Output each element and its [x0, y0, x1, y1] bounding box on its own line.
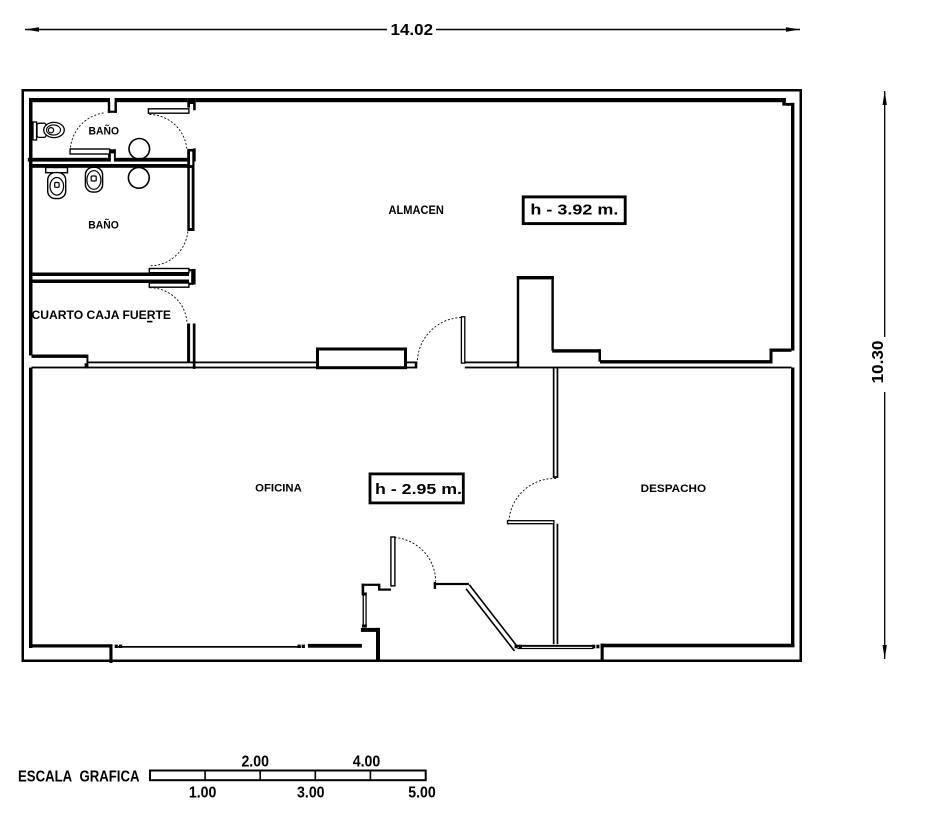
svg-text:BAÑO: BAÑO [88, 218, 119, 231]
svg-text:ESCALA GRAFICA: ESCALA GRAFICA [18, 768, 140, 785]
svg-text:ALMACEN: ALMACEN [389, 205, 444, 217]
svg-text:5.00: 5.00 [408, 784, 436, 801]
svg-text:h - 2.95 m.: h - 2.95 m. [375, 482, 462, 498]
svg-text:DESPACHO: DESPACHO [641, 483, 707, 495]
svg-text:3.00: 3.00 [297, 784, 325, 801]
svg-text:4.00: 4.00 [353, 754, 381, 771]
svg-text:CUARTO CAJA FUERTE: CUARTO CAJA FUERTE [32, 310, 172, 322]
svg-text:14.02: 14.02 [391, 22, 434, 39]
svg-text:OFICINA: OFICINA [255, 483, 302, 495]
svg-text:2.00: 2.00 [241, 754, 269, 771]
svg-text:BAÑO: BAÑO [89, 124, 120, 137]
svg-text:h - 3.92 m.: h - 3.92 m. [530, 203, 618, 219]
svg-text:10.30: 10.30 [870, 341, 887, 384]
svg-text:1.00: 1.00 [189, 784, 217, 801]
